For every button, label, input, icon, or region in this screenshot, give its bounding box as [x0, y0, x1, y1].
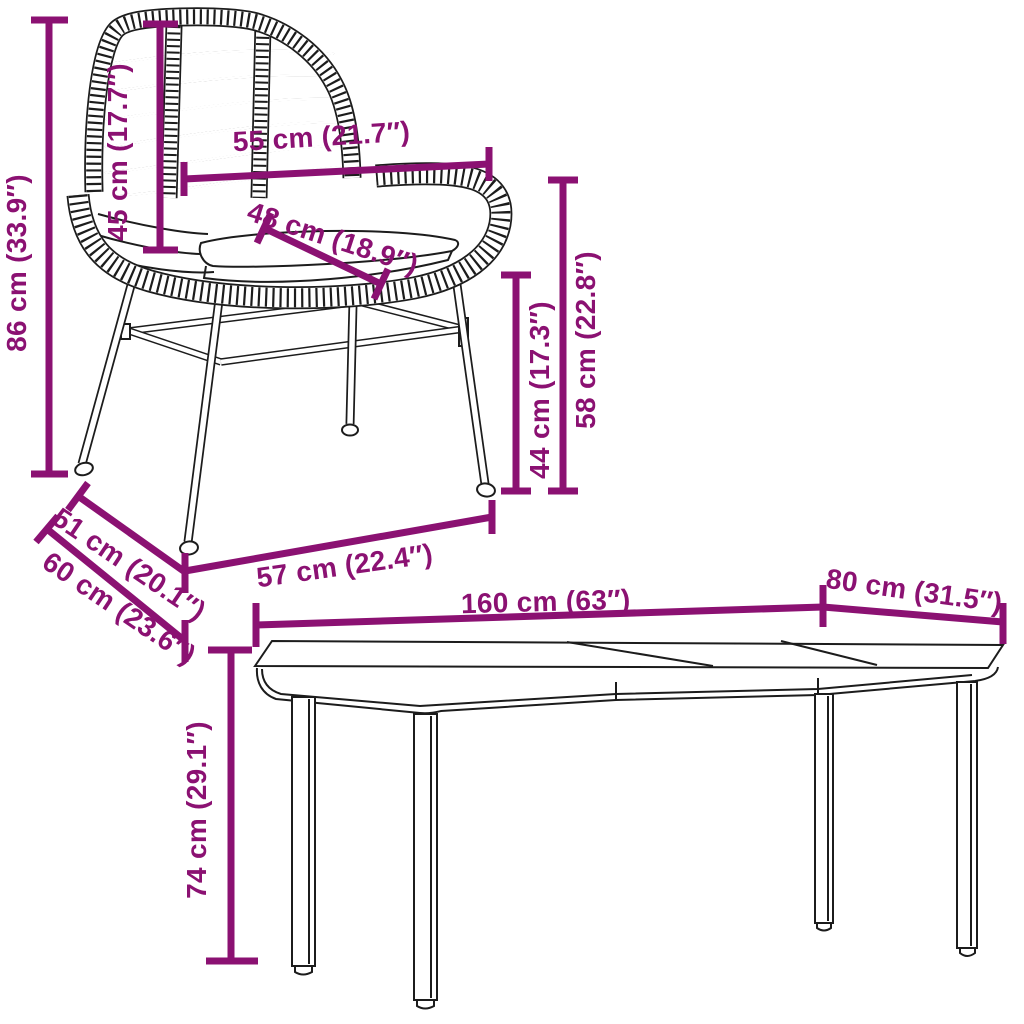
chair-brace-frame	[121, 302, 468, 362]
dim-chair-height: 86 cm (33.9″)	[1, 20, 68, 474]
dim-chair-width: 57 cm (22.4″)	[185, 500, 492, 593]
dim-seat-height: 44 cm (17.3″)	[501, 275, 555, 491]
table-apron	[257, 667, 998, 713]
dim-table-length: 160 cm (63″)	[256, 584, 823, 647]
chair-foot-cap	[74, 461, 94, 477]
dim-armrest-height: 58 cm (22.8″)	[548, 180, 601, 491]
dim-table-height: 74 cm (29.1″)	[181, 650, 258, 961]
chair-foot-cap	[342, 425, 358, 436]
chair-height-label: 86 cm (33.9″)	[1, 174, 32, 352]
dimension-annotations: 86 cm (33.9″) 45 cm (17.7″) 55 cm (21.7″…	[1, 20, 1004, 961]
dimension-diagram-svg: 86 cm (33.9″) 45 cm (17.7″) 55 cm (21.7″…	[0, 0, 1024, 1024]
backrest-height-label: 45 cm (17.7″)	[102, 63, 133, 241]
armrest-height-label: 58 cm (22.8″)	[570, 251, 601, 429]
table-legs	[292, 682, 977, 1009]
dim-table-depth: 80 cm (31.5″)	[823, 563, 1004, 644]
chair-foot-cap	[476, 482, 496, 498]
product-dimension-image: 86 cm (33.9″) 45 cm (17.7″) 55 cm (21.7″…	[0, 0, 1024, 1024]
seat-height-label: 44 cm (17.3″)	[524, 301, 555, 479]
table-length-label: 160 cm (63″)	[461, 584, 631, 619]
table-glass-top	[255, 641, 1003, 668]
table-drawing	[255, 641, 1003, 1009]
table-height-label: 74 cm (29.1″)	[181, 721, 212, 899]
chair-drawing	[74, 17, 501, 556]
